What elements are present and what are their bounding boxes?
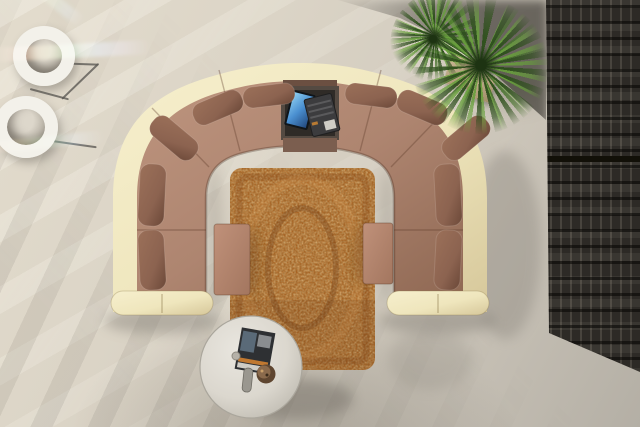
small-knob — [232, 352, 240, 360]
floor-blob-shadow — [388, 330, 472, 390]
ottoman-right — [363, 223, 393, 284]
pillow — [137, 163, 166, 226]
pillow — [137, 229, 166, 290]
bowl-speck — [261, 370, 264, 373]
bowl-speck — [266, 374, 269, 377]
pillow — [433, 229, 462, 290]
magazine-photo — [257, 334, 272, 348]
plant-center — [462, 46, 500, 84]
plant-center — [420, 26, 446, 52]
bowl-contents — [258, 366, 271, 379]
living-room-scene — [0, 0, 640, 427]
ottoman-left — [214, 224, 250, 295]
pillow — [433, 163, 462, 226]
console-front-shelf — [283, 138, 337, 152]
